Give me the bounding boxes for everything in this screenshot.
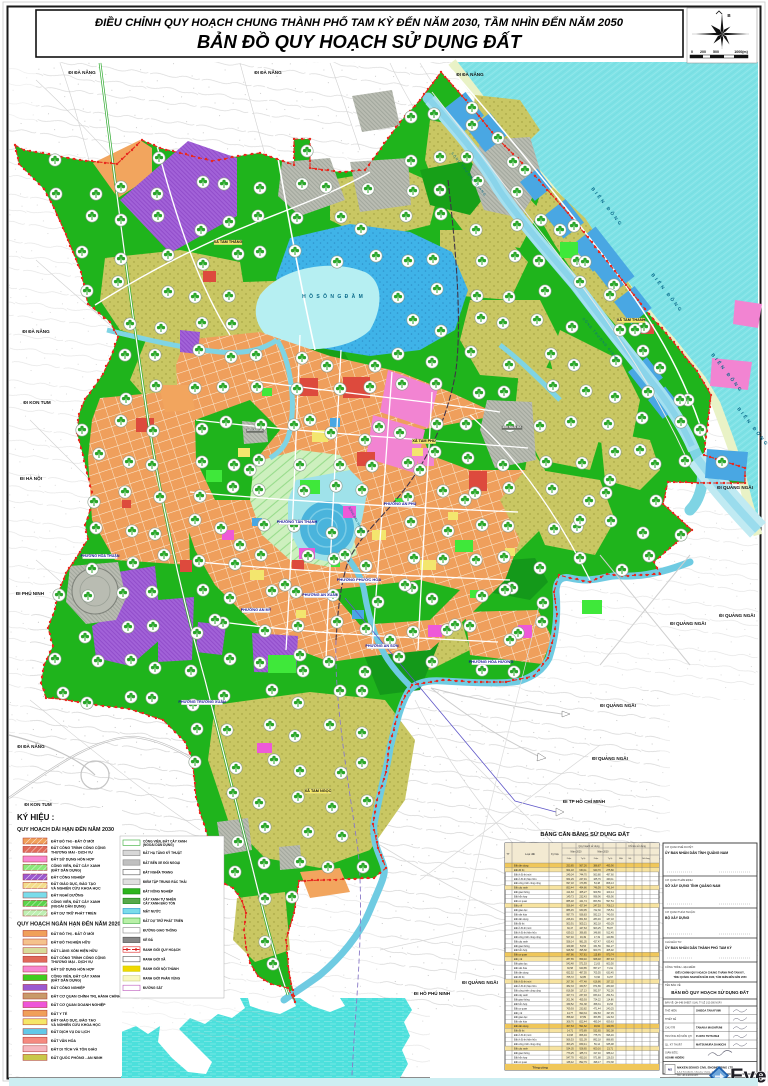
svg-text:Đất cơ quan: Đất cơ quan: [514, 1007, 528, 1010]
svg-text:527,40: 527,40: [566, 936, 574, 939]
svg-text:ĐI HỒ PHÚ NINH: ĐI HỒ PHÚ NINH: [414, 990, 451, 996]
svg-text:ỦY BAN NHÂN DÂN TỈNH QUẢNG NAM: ỦY BAN NHÂN DÂN TỈNH QUẢNG NAM: [665, 850, 728, 855]
svg-text:465,27: 465,27: [579, 891, 587, 894]
svg-text:363,85: 363,85: [593, 1016, 601, 1019]
svg-text:TRƯỞNG BỘ MÔN QH: TRƯỞNG BỘ MÔN QH: [665, 1035, 692, 1038]
svg-text:ĐẤT NGHĨA TRANG: ĐẤT NGHĨA TRANG: [143, 869, 173, 874]
svg-text:267,90: 267,90: [566, 981, 574, 984]
svg-text:571,53: 571,53: [579, 963, 587, 966]
svg-text:17,19: 17,19: [594, 936, 601, 939]
svg-text:Đất cây xanh: Đất cây xanh: [514, 940, 529, 943]
svg-text:247,91: 247,91: [579, 878, 587, 881]
svg-text:897,86: 897,86: [566, 954, 574, 957]
svg-text:487,55: 487,55: [579, 972, 587, 975]
svg-text:388,87: 388,87: [593, 864, 601, 867]
svg-text:55,87: 55,87: [607, 927, 614, 930]
svg-text:Đất giáo dục: Đất giáo dục: [514, 909, 528, 912]
svg-text:240,25: 240,25: [606, 1007, 614, 1010]
svg-text:928,65: 928,65: [579, 1048, 587, 1051]
svg-text:Đất ở đô thị mới: Đất ở đô thị mới: [514, 981, 532, 984]
svg-text:43,68: 43,68: [567, 1034, 574, 1037]
svg-text:NIKKEN SEKKEI CIVIL ENGINEERIN: NIKKEN SEKKEI CIVIL ENGINEERING LTD.: [677, 1066, 734, 1070]
svg-text:ĐI ĐÀ NẴNG: ĐI ĐÀ NẴNG: [22, 328, 50, 334]
svg-text:Tổng cộng: Tổng cộng: [532, 1066, 547, 1070]
svg-text:348,80: 348,80: [593, 931, 601, 934]
svg-text:303,25: 303,25: [566, 1043, 574, 1046]
svg-text:0: 0: [691, 50, 693, 54]
svg-text:697,18: 697,18: [566, 882, 574, 885]
svg-text:339,52: 339,52: [566, 1003, 574, 1006]
svg-text:633,45: 633,45: [606, 972, 614, 975]
svg-text:THƯƠNG MẠI - DỊCH VỤ: THƯƠNG MẠI - DỊCH VỤ: [51, 850, 93, 854]
svg-text:382,33: 382,33: [566, 985, 574, 988]
svg-text:892,79: 892,79: [579, 1061, 587, 1064]
svg-text:Đất cây xanh: Đất cây xanh: [514, 994, 529, 997]
svg-text:337,32: 337,32: [606, 981, 614, 984]
svg-text:Đất y tế: Đất y tế: [514, 1012, 523, 1015]
svg-text:ĐẤT BẾN XE ĐỐI NGOẠI: ĐẤT BẾN XE ĐỐI NGOẠI: [143, 860, 180, 865]
svg-text:ĐẤT CƠ QUAN CHÍNH TRỊ, HÀNH CH: ĐẤT CƠ QUAN CHÍNH TRỊ, HÀNH CHÍNH: [51, 994, 121, 999]
svg-text:ĐIỀU CHỈNH QUY HOẠCH CHUNG THÀ: ĐIỀU CHỈNH QUY HOẠCH CHUNG THÀNH PHỐ TAM…: [95, 16, 624, 29]
svg-text:Đất y tế: Đất y tế: [514, 905, 523, 908]
svg-text:Đất ở đô thị hiện hữu: Đất ở đô thị hiện hữu: [514, 878, 537, 881]
svg-text:PHƯỜNG AN PHÚ: PHƯỜNG AN PHÚ: [384, 501, 417, 506]
svg-text:(NGOÀI DÂN DỤNG): (NGOÀI DÂN DỤNG): [143, 842, 174, 847]
svg-text:31,57: 31,57: [607, 976, 614, 979]
svg-text:886,45: 886,45: [566, 909, 574, 912]
svg-text:725,51: 725,51: [606, 909, 614, 912]
svg-text:447,63: 447,63: [579, 927, 587, 930]
svg-text:563,80: 563,80: [593, 873, 601, 876]
svg-text:Đất hỗn hợp: Đất hỗn hợp: [514, 896, 528, 899]
svg-text:833,44: 833,44: [593, 994, 601, 997]
svg-text:GIÁM ĐỐC:: GIÁM ĐỐC:: [665, 1052, 679, 1055]
svg-text:Đất đô thị: Đất đô thị: [514, 976, 525, 979]
svg-text:247,53: 247,53: [593, 905, 601, 908]
svg-text:ĐẤT DI TÍCH VÀ TÔN GIÁO: ĐẤT DI TÍCH VÀ TÔN GIÁO: [51, 1046, 97, 1051]
svg-text:639,15: 639,15: [566, 931, 574, 934]
svg-text:427,84: 427,84: [579, 905, 587, 908]
svg-text:441,74: 441,74: [579, 900, 587, 903]
svg-text:200: 200: [700, 50, 706, 54]
svg-text:138,42: 138,42: [566, 1061, 574, 1064]
svg-text:532,65: 532,65: [593, 1030, 601, 1033]
svg-text:Năm 2020: Năm 2020: [570, 851, 582, 854]
svg-text:Diện: Diện: [567, 858, 572, 860]
svg-text:Đất giao thông: Đất giao thông: [514, 891, 530, 894]
svg-text:Đất giao thông: Đất giao thông: [514, 945, 530, 948]
svg-text:QUY HOẠCH DÀI HẠN ĐẾN NĂM 2030: QUY HOẠCH DÀI HẠN ĐẾN NĂM 2030: [17, 826, 114, 833]
svg-text:888,85: 888,85: [606, 1039, 614, 1042]
svg-text:547,78: 547,78: [566, 1056, 574, 1059]
svg-text:Đất ở đô thị mới: Đất ở đô thị mới: [514, 873, 532, 876]
svg-text:307,63: 307,63: [566, 1025, 574, 1028]
svg-text:FUJITA TETSUSHI: FUJITA TETSUSHI: [696, 1034, 719, 1038]
svg-text:VÀ NGHIÊN CỨU KHOA HỌC: VÀ NGHIÊN CỨU KHOA HỌC: [51, 1022, 101, 1027]
svg-text:Số tầng: Số tầng: [642, 857, 650, 860]
svg-text:457,43: 457,43: [606, 958, 614, 961]
svg-text:XÃ TAM NGỌC: XÃ TAM NGỌC: [305, 788, 332, 793]
svg-text:998,96: 998,96: [593, 896, 601, 899]
svg-text:1000(m): 1000(m): [734, 50, 748, 54]
svg-text:458,31: 458,31: [593, 1003, 601, 1006]
svg-text:32,85: 32,85: [580, 976, 587, 979]
svg-text:592,97: 592,97: [593, 989, 601, 992]
svg-text:ĐI TP HỒ CHÍ MINH: ĐI TP HỒ CHÍ MINH: [563, 797, 606, 804]
svg-text:ĐẤT SỬ DỤNG HỖN HỢP: ĐẤT SỬ DỤNG HỖN HỢP: [51, 857, 95, 862]
svg-text:603,50: 603,50: [606, 963, 614, 966]
svg-text:21,63: 21,63: [594, 963, 601, 966]
svg-text:XÃ TAM THẮNG: XÃ TAM THẮNG: [214, 239, 243, 244]
svg-text:866,94: 866,94: [579, 1034, 587, 1037]
svg-text:TANAKA MASHFUMI: TANAKA MASHFUMI: [696, 1026, 723, 1030]
svg-text:ĐẤT CÔNG NGHIỆP: ĐẤT CÔNG NGHIỆP: [51, 985, 86, 990]
svg-text:46,49: 46,49: [580, 936, 587, 939]
svg-text:CÂY XANH BẢO TỒN: CÂY XANH BẢO TỒN: [143, 900, 176, 905]
svg-text:765,72: 765,72: [566, 976, 574, 979]
svg-text:ĐẤT DỊCH VỤ DU LỊCH: ĐẤT DỊCH VỤ DU LỊCH: [51, 1030, 90, 1034]
svg-text:Đất hỗn hợp: Đất hỗn hợp: [514, 949, 528, 952]
svg-text:497,60: 497,60: [606, 873, 614, 876]
svg-text:BẢN VẼ: QH-04B SHEET: 01: BẢN VẼ: QH-04B SHEET: 01/AL TỶ LỆ 1/10.0…: [665, 1002, 722, 1005]
svg-text:Đất cây xanh: Đất cây xanh: [514, 1048, 529, 1051]
svg-text:456,90: 456,90: [606, 896, 614, 899]
svg-text:Đất cây xanh: Đất cây xanh: [514, 887, 529, 890]
svg-text:RANH GIỚI PHÂN VÙNG: RANH GIỚI PHÂN VÙNG: [143, 976, 181, 981]
svg-text:185,74: 185,74: [579, 1052, 587, 1055]
svg-text:566,53: 566,53: [566, 1039, 574, 1042]
svg-text:Đất hỗn hợp: Đất hỗn hợp: [514, 1056, 528, 1059]
svg-text:724,22: 724,22: [593, 998, 601, 1001]
svg-text:71,91: 71,91: [607, 967, 614, 970]
svg-text:109,14: 109,14: [606, 891, 614, 894]
svg-text:ĐẤT ĐÔ THỊ - ĐẤT Ở MỚI: ĐẤT ĐÔ THỊ - ĐẤT Ở MỚI: [51, 839, 94, 844]
svg-text:ĐI QUẢNG NGÃI: ĐI QUẢNG NGÃI: [462, 979, 498, 985]
svg-text:ĐẤT CƠ QUAN DOANH NGHIỆP: ĐẤT CƠ QUAN DOANH NGHIỆP: [51, 1002, 106, 1007]
svg-text:Đất đô thị: Đất đô thị: [514, 869, 525, 872]
svg-text:708,13: 708,13: [606, 905, 614, 908]
svg-text:652,52: 652,52: [566, 972, 574, 975]
svg-text:91,53: 91,53: [607, 1003, 614, 1006]
svg-text:126,53: 126,53: [606, 1056, 614, 1059]
svg-text:762,26: 762,26: [606, 989, 614, 992]
svg-text:Đất ở đô thị mới: Đất ở đô thị mới: [514, 927, 532, 930]
svg-text:Tỷ lệ: Tỷ lệ: [608, 857, 614, 860]
svg-text:769,93: 769,93: [566, 1007, 574, 1010]
svg-text:657,27: 657,27: [593, 967, 601, 970]
svg-text:53,48: 53,48: [594, 882, 601, 885]
svg-text:414,83: 414,83: [566, 891, 574, 894]
svg-text:ĐẤT Y TẾ: ĐẤT Y TẾ: [51, 1011, 68, 1016]
svg-text:Đất công trình công cộng: Đất công trình công cộng: [514, 882, 541, 885]
svg-text:921,39: 921,39: [579, 1039, 587, 1042]
svg-text:455,93: 455,93: [579, 998, 587, 1001]
svg-text:Năm 2030: Năm 2030: [597, 851, 609, 854]
svg-text:Đất công trình công cộng: Đất công trình công cộng: [514, 936, 541, 939]
svg-text:Đất dân dụng: Đất dân dụng: [514, 1025, 529, 1028]
svg-text:630,11: 630,11: [579, 869, 587, 872]
svg-text:659,63: 659,63: [606, 1021, 614, 1024]
svg-text:MATSUMURA DAIKICHI: MATSUMURA DAIKICHI: [696, 1043, 726, 1047]
svg-text:Đất đô thị: Đất đô thị: [514, 1030, 525, 1033]
svg-text:56,14: 56,14: [594, 1043, 601, 1046]
svg-text:(ĐẤT DÂN DỤNG): (ĐẤT DÂN DỤNG): [51, 978, 82, 983]
svg-text:996,46: 996,46: [606, 1034, 614, 1037]
svg-text:PHƯỜNG AN XUÂN: PHƯỜNG AN XUÂN: [302, 592, 338, 597]
svg-text:332,83: 332,83: [593, 1012, 601, 1015]
svg-text:ĐI ĐÀ NẴNG: ĐI ĐÀ NẴNG: [254, 69, 282, 75]
svg-text:Quy hoạch sử dụng: Quy hoạch sử dụng: [578, 845, 600, 848]
svg-text:ĐI QUẢNG NGÃI: ĐI QUẢNG NGÃI: [592, 755, 628, 761]
svg-text:Đất cơ quan: Đất cơ quan: [514, 900, 528, 903]
svg-text:ĐẤT HẠ TẦNG KỸ THUẬT: ĐẤT HẠ TẦNG KỸ THUẬT: [143, 850, 182, 855]
svg-text:TEL +81-6-6203-5971: TEL +81-6-6203-5971: [677, 1075, 699, 1077]
svg-text:THỂ HIỆN: THỂ HIỆN: [665, 1010, 677, 1013]
svg-text:30,47: 30,47: [567, 927, 574, 930]
svg-text:975,89: 975,89: [579, 1030, 587, 1033]
svg-text:396,85: 396,85: [579, 931, 587, 934]
svg-text:405,92: 405,92: [606, 949, 614, 952]
svg-text:149,73: 149,73: [566, 896, 574, 899]
svg-text:117,13: 117,13: [579, 989, 587, 992]
svg-text:430,29: 430,29: [606, 922, 614, 925]
svg-text:114,86: 114,86: [606, 998, 614, 1001]
svg-text:ĐI QUẢNG NGÃI: ĐI QUẢNG NGÃI: [719, 612, 755, 618]
svg-text:BỘ XÂY DỰNG: BỘ XÂY DỰNG: [665, 915, 690, 920]
svg-text:RANH GIỚI NỘI THÀNH: RANH GIỚI NỘI THÀNH: [143, 966, 179, 971]
svg-text:853,44: 853,44: [566, 887, 574, 890]
svg-text:495,90: 495,90: [606, 864, 614, 867]
svg-text:ỦY BAN NHÂN DÂN THÀNH PHỐ TAM: ỦY BAN NHÂN DÂN THÀNH PHỐ TAM KỲ: [665, 945, 732, 950]
svg-text:PHƯỜNG HÒA THUẬN: PHƯỜNG HÒA THUẬN: [81, 553, 120, 558]
svg-text:ĐỒI AN HÀ: ĐỒI AN HÀ: [247, 427, 263, 432]
svg-text:PHƯỜNG PHƯỚC HÒA: PHƯỜNG PHƯỚC HÒA: [337, 577, 382, 582]
svg-text:409,11: 409,11: [606, 878, 614, 881]
svg-text:635,43: 635,43: [606, 940, 614, 943]
svg-text:ĐẤT QUỐC PHÒNG - AN NINH: ĐẤT QUỐC PHÒNG - AN NINH: [51, 1055, 103, 1060]
svg-text:280,48: 280,48: [606, 985, 614, 988]
svg-text:233,82: 233,82: [579, 1007, 587, 1010]
svg-text:ĐI ĐÀ NẴNG: ĐI ĐÀ NẴNG: [17, 743, 45, 749]
svg-text:Loại đất: Loại đất: [525, 852, 535, 856]
svg-text:861,83: 861,83: [579, 918, 587, 921]
svg-text:534,35: 534,35: [566, 1048, 574, 1051]
svg-text:ĐẤT ĐÔ THỊ - ĐẤT Ở MỚI: ĐẤT ĐÔ THỊ - ĐẤT Ở MỚI: [51, 931, 94, 936]
svg-text:Đất văn hóa: Đất văn hóa: [514, 914, 528, 917]
svg-text:SỞ XÂY DỰNG TỈNH QUẢNG NAM: SỞ XÂY DỰNG TỈNH QUẢNG NAM: [665, 883, 721, 888]
svg-text:912,45: 912,45: [606, 931, 614, 934]
svg-text:QL. KỸ THUẬT: QL. KỸ THUẬT: [665, 1044, 683, 1047]
svg-text:BẢN ĐỒ QUY HOẠCH SỬ DỤNG ĐẤT: BẢN ĐỒ QUY HOẠCH SỬ DỤNG ĐẤT: [671, 990, 749, 995]
svg-text:ĐI KON TUM: ĐI KON TUM: [23, 400, 50, 405]
svg-text:935,98: 935,98: [606, 1043, 614, 1046]
svg-text:640,85: 640,85: [579, 967, 587, 970]
svg-text:237,93: 237,93: [579, 994, 587, 997]
svg-text:997,79: 997,79: [566, 914, 574, 917]
svg-text:(ĐẤT DÂN DỤNG): (ĐẤT DÂN DỤNG): [51, 867, 82, 872]
svg-text:971,88: 971,88: [593, 1056, 601, 1059]
svg-text:254,51: 254,51: [606, 994, 614, 997]
svg-text:604,18: 604,18: [566, 869, 574, 872]
svg-text:505,21: 505,21: [579, 922, 587, 925]
svg-text:ĐƯỜNG SẮT: ĐƯỜNG SẮT: [143, 985, 163, 990]
svg-text:THIẾT KẾ: THIẾT KẾ: [665, 1018, 677, 1021]
svg-text:630,95: 630,95: [579, 909, 587, 912]
svg-text:ĐẤT DỰ TRỮ PHÁT TRIỂN: ĐẤT DỰ TRỮ PHÁT TRIỂN: [143, 918, 184, 923]
svg-text:226,91: 226,91: [566, 918, 574, 921]
svg-text:903,25: 903,25: [593, 927, 601, 930]
svg-text:ĐIỂM TẬP TRUNG RÁC THẢI: ĐIỂM TẬP TRUNG RÁC THẢI: [143, 879, 187, 884]
svg-text:BẢN ĐỒ QUY HOẠCH SỬ DỤNG ĐẤT: BẢN ĐỒ QUY HOẠCH SỬ DỤNG ĐẤT: [197, 31, 523, 52]
svg-text:471,44: 471,44: [593, 1007, 601, 1010]
svg-text:Đất dân dụng: Đất dân dụng: [514, 972, 529, 975]
svg-text:308,76: 308,76: [566, 1021, 574, 1024]
svg-text:991,27: 991,27: [606, 945, 614, 948]
svg-text:Đất công trình công cộng: Đất công trình công cộng: [514, 989, 541, 992]
svg-text:Đất cơ quan: Đất cơ quan: [514, 1061, 528, 1064]
svg-text:940,70: 940,70: [593, 869, 601, 872]
svg-text:PHƯỜNG HÒA HƯƠNG: PHƯỜNG HÒA HƯƠNG: [469, 659, 514, 664]
svg-text:936,83: 936,83: [579, 914, 587, 917]
svg-text:ĐẤT SỬ DỤNG HỖN HỢP: ĐẤT SỬ DỤNG HỖN HỢP: [51, 967, 95, 972]
svg-text:ĐỒI NGẢI DA: ĐỒI NGẢI DA: [503, 424, 523, 429]
svg-text:746,59: 746,59: [593, 887, 601, 890]
svg-text:775,76: 775,76: [593, 1034, 601, 1037]
svg-text:165,76: 165,76: [593, 878, 601, 881]
svg-text:874,86: 874,86: [593, 985, 601, 988]
svg-text:PHƯỜNG TÂN THẠNH: PHƯỜNG TÂN THẠNH: [277, 519, 318, 524]
svg-text:ĐẤT LÀNG XÓM HIỆN HỮU: ĐẤT LÀNG XÓM HIỆN HỮU: [51, 948, 98, 953]
svg-text:ĐẤT VĂN HÓA: ĐẤT VĂN HÓA: [51, 1038, 76, 1043]
svg-text:VÀ NGHIÊN CỨU KHOA HỌC: VÀ NGHIÊN CỨU KHOA HỌC: [51, 885, 101, 890]
svg-text:808,13: 808,13: [606, 882, 614, 885]
svg-text:Đất đô thị: Đất đô thị: [514, 922, 525, 925]
svg-text:592,23: 592,23: [593, 914, 601, 917]
svg-text:885,48: 885,48: [566, 900, 574, 903]
svg-text:KÈ ĐÁ: KÈ ĐÁ: [143, 937, 154, 942]
svg-text:Đất hỗn hợp: Đất hỗn hợp: [514, 1003, 528, 1006]
svg-text:Đất công trình công cộng: Đất công trình công cộng: [514, 1043, 541, 1046]
svg-text:BẢNG CÂN BẰNG SỬ DỤNG ĐẤT: BẢNG CÂN BẰNG SỬ DỤNG ĐẤT: [540, 830, 630, 838]
svg-text:Tỷ lệ: Tỷ lệ: [581, 857, 587, 860]
svg-text:Mật: Mật: [619, 857, 623, 860]
svg-text:664,29: 664,29: [566, 878, 574, 881]
svg-text:ĐẤT CÔNG NGHIỆP: ĐẤT CÔNG NGHIỆP: [51, 875, 86, 880]
svg-text:Đất giáo dục: Đất giáo dục: [514, 963, 528, 966]
svg-text:53,53: 53,53: [580, 945, 587, 948]
svg-text:Đất văn hóa: Đất văn hóa: [514, 1021, 528, 1024]
svg-text:44,77: 44,77: [567, 1012, 574, 1015]
svg-text:PHƯỜNG AN MỸ: PHƯỜNG AN MỸ: [241, 607, 272, 612]
svg-text:892,18: 892,18: [593, 1039, 601, 1042]
svg-text:NS: NS: [668, 1068, 672, 1072]
svg-text:173,85: 173,85: [579, 882, 587, 885]
svg-text:900,76: 900,76: [593, 949, 601, 952]
svg-text:558,14: 558,14: [566, 940, 574, 943]
svg-text:498,17: 498,17: [593, 1061, 601, 1064]
svg-text:327,74: 327,74: [566, 994, 574, 997]
svg-text:201,96: 201,96: [566, 998, 574, 1001]
svg-text:370,38: 370,38: [606, 1061, 614, 1064]
svg-text:ĐI QUẢNG NGÃI: ĐI QUẢNG NGÃI: [600, 702, 636, 708]
svg-text:701,38: 701,38: [579, 1003, 587, 1006]
svg-text:477,48: 477,48: [579, 981, 587, 984]
svg-text:909,56: 909,56: [593, 891, 601, 894]
svg-text:616,86: 616,86: [593, 981, 601, 984]
svg-text:XÃ TAM PHÚ: XÃ TAM PHÚ: [412, 438, 436, 443]
svg-text:688,12: 688,12: [606, 1052, 614, 1055]
svg-text:XÃ TAM THANH: XÃ TAM THANH: [617, 317, 646, 322]
svg-text:556,84: 556,84: [566, 905, 574, 908]
svg-text:317,40: 317,40: [593, 1052, 601, 1055]
svg-text:30,58: 30,58: [567, 967, 574, 970]
svg-text:500: 500: [713, 50, 719, 54]
svg-text:591,62: 591,62: [579, 1025, 587, 1028]
svg-text:ĐI ĐÀ NẴNG: ĐI ĐÀ NẴNG: [68, 69, 96, 75]
svg-text:981,35: 981,35: [579, 940, 587, 943]
svg-text:Ký hiệu: Ký hiệu: [551, 853, 560, 856]
svg-text:Đất y tế: Đất y tế: [514, 958, 523, 961]
svg-text:249,34: 249,34: [566, 873, 574, 876]
svg-text:395,68: 395,68: [579, 949, 587, 952]
svg-text:659,40: 659,40: [579, 958, 587, 961]
svg-text:Diện: Diện: [594, 858, 599, 860]
svg-text:275,80: 275,80: [606, 869, 614, 872]
svg-text:503,91: 503,91: [566, 922, 574, 925]
svg-text:ĐI ĐÀ NẴNG: ĐI ĐÀ NẴNG: [456, 71, 484, 77]
svg-text:Đất ở đô thị hiện hữu: Đất ở đô thị hiện hữu: [514, 985, 537, 988]
svg-text:433,16: 433,16: [579, 1056, 587, 1059]
svg-text:Đất giao thông: Đất giao thông: [514, 998, 530, 1001]
svg-text:(NGOÀI DÂN DỤNG): (NGOÀI DÂN DỤNG): [51, 903, 86, 908]
svg-text:H Ồ S Ô N G Đ Ầ M: H Ồ S Ô N G Đ Ầ M: [302, 292, 364, 300]
svg-text:Đất giao thông: Đất giao thông: [514, 1052, 530, 1055]
svg-text:120,86: 120,86: [606, 936, 614, 939]
svg-text:ĐƯỜNG GIAO THÔNG: ĐƯỜNG GIAO THÔNG: [143, 928, 177, 933]
svg-text:RANH GIỚI XÃ: RANH GIỚI XÃ: [143, 956, 166, 961]
svg-text:Đất dân dụng: Đất dân dụng: [514, 864, 529, 867]
svg-text:928,58: 928,58: [566, 949, 574, 952]
svg-text:14,71: 14,71: [567, 1030, 574, 1033]
svg-text:543,48: 543,48: [566, 963, 574, 966]
svg-text:253,85: 253,85: [566, 864, 574, 867]
svg-text:ĐẤT DỰ TRỮ PHÁT TRIỂN: ĐẤT DỰ TRỮ PHÁT TRIỂN: [51, 911, 97, 916]
svg-text:839,41: 839,41: [579, 1043, 587, 1046]
svg-text:740,93: 740,93: [606, 914, 614, 917]
svg-text:169,35: 169,35: [606, 1025, 614, 1028]
svg-text:Chỉ tiêu sử dụng: Chỉ tiêu sử dụng: [628, 845, 646, 848]
svg-text:582,38: 582,38: [606, 1030, 614, 1033]
svg-text:Đất văn hóa: Đất văn hóa: [514, 967, 528, 970]
svg-text:283,46: 283,46: [593, 918, 601, 921]
svg-text:973,74: 973,74: [606, 954, 614, 957]
svg-text:990,34: 990,34: [579, 1012, 587, 1015]
svg-text:TT: TT: [506, 852, 510, 856]
svg-text:MẶT NƯỚC: MẶT NƯỚC: [143, 908, 161, 913]
svg-text:287,65: 287,65: [566, 958, 574, 961]
svg-text:QUY HOẠCH NGẮN HẠN ĐẾN NĂM 202: QUY HOẠCH NGẮN HẠN ĐẾN NĂM 2020: [17, 919, 121, 927]
svg-text:ĐI KON TUM: ĐI KON TUM: [24, 802, 51, 807]
svg-text:741,64: 741,64: [606, 887, 614, 890]
svg-text:705,55: 705,55: [593, 972, 601, 975]
svg-text:72,96: 72,96: [594, 976, 601, 979]
svg-text:TỈNH QUẢNG NAM ĐẾN NĂM 2030, T: TỈNH QUẢNG NAM ĐẾN NĂM 2030, TẦM NHÌN ĐẾ…: [673, 976, 747, 979]
svg-text:CHỦ TRÌ: CHỦ TRÌ: [665, 1027, 675, 1030]
svg-text:Đất cơ quan: Đất cơ quan: [514, 954, 528, 957]
svg-text:142,63: 142,63: [606, 1016, 614, 1019]
svg-text:PHƯỜNG AN SƠN: PHƯỜNG AN SƠN: [365, 643, 399, 648]
svg-text:Đất giáo dục: Đất giáo dục: [514, 1016, 528, 1019]
